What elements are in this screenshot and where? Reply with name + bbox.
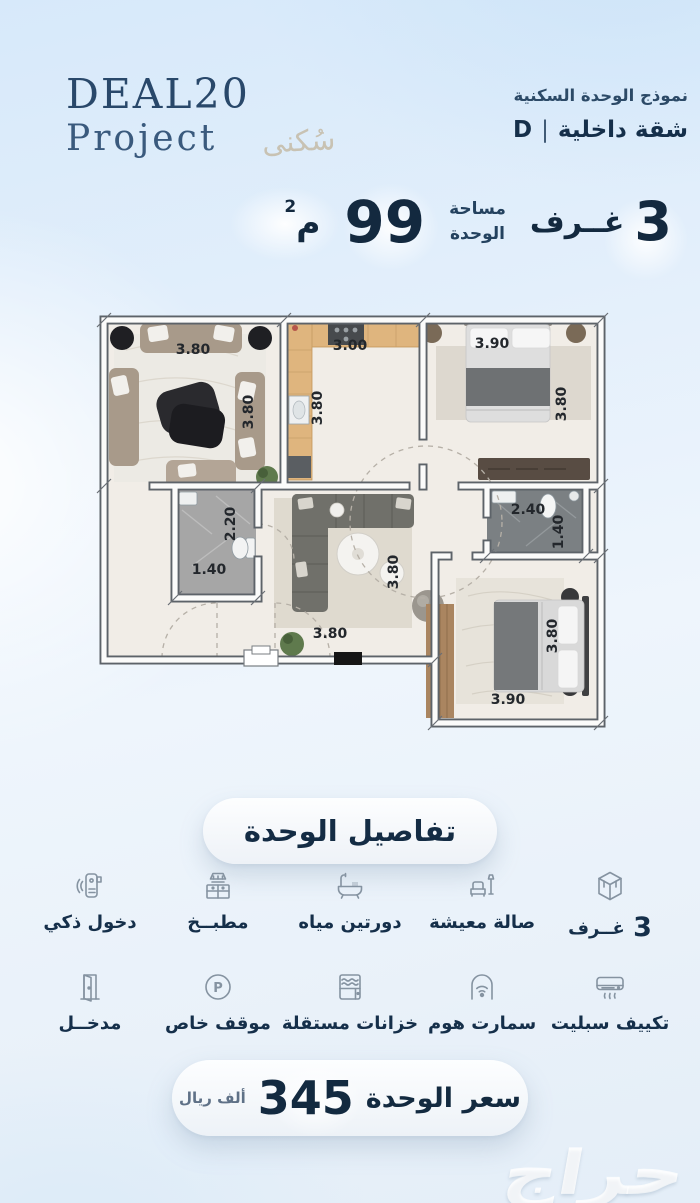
door-icon <box>72 969 108 1005</box>
area-label: مساحة الوحدة <box>449 197 506 248</box>
area-unit: م2 <box>284 203 320 242</box>
feature-kitchen: مطبــخ <box>154 868 282 943</box>
price-unit: ألف ريال <box>179 1089 246 1107</box>
header-unit-info: نموذج الوحدة السكنية شقة داخلية|D <box>513 86 688 143</box>
kitchen-icon <box>200 868 236 904</box>
feature-parking: P موقف خاص <box>154 969 282 1034</box>
brand-script-arabic: سُكنى <box>261 122 336 160</box>
price-pill: سعر الوحدة 345 ألف ريال <box>172 1060 528 1136</box>
svg-text:P: P <box>213 981 223 996</box>
floor-plan: 3.80 3.80 3.00 3.80 3.90 3.80 2.20 1.40 … <box>96 310 613 738</box>
dim-bedroom1-right: 3.80 <box>554 386 570 421</box>
unit-model-subtitle: نموذج الوحدة السكنية <box>513 86 688 105</box>
feature-tanks: خزانات مستقلة <box>282 969 418 1034</box>
price-value: 345 <box>258 1075 354 1121</box>
separator: | <box>541 117 549 143</box>
smart-home-icon <box>464 969 500 1005</box>
feature-smart-home: سمارت هوم <box>418 969 546 1034</box>
dim-bath1-height: 2.20 <box>223 506 239 541</box>
sofa-icon <box>464 868 500 904</box>
rooms-count: 3 <box>634 195 672 249</box>
unit-code: D <box>513 117 532 143</box>
feature-bathrooms: دورتين مياه <box>282 868 418 943</box>
bathtub-icon <box>332 868 368 904</box>
dim-bath1-width: 1.40 <box>192 562 227 578</box>
feature-ac: تكييف سبليت <box>546 969 674 1034</box>
parking-icon: P <box>200 969 236 1005</box>
dim-living-right: 3.80 <box>241 394 257 429</box>
rooms-cube-icon <box>592 868 628 904</box>
wall-marker <box>334 652 362 665</box>
brand-sub: Project <box>66 119 250 159</box>
dim-hall-height: 3.80 <box>386 554 402 589</box>
unit-type: شقة داخلية <box>558 117 688 143</box>
feature-smart-entry: دخول ذكي <box>26 868 154 943</box>
feature-living-room: صالة معيشة <box>418 868 546 943</box>
rooms-label: غــرف <box>530 205 625 240</box>
brand-name: DEAL20 <box>66 74 250 115</box>
ac-icon <box>592 969 628 1005</box>
dim-kitchen-top: 3.00 <box>333 338 368 354</box>
unit-type-line: شقة داخلية|D <box>513 117 688 143</box>
details-title-pill: تفاصيل الوحدة <box>203 798 497 864</box>
dim-living-top: 3.80 <box>176 342 211 358</box>
dim-bedroom2-width: 3.90 <box>491 692 526 708</box>
area-value: 99 <box>344 193 425 251</box>
details-title: تفاصيل الوحدة <box>244 814 456 848</box>
features-grid: 3 غــرف صالة معيشة دورتين مياه <box>26 868 674 1034</box>
dim-bath2-width: 2.40 <box>511 502 546 518</box>
brand-logo: DEAL20 Project سُكنى <box>66 74 250 159</box>
rooms-stat: 3 غــرف <box>530 195 672 249</box>
dim-bedroom2-height: 3.80 <box>545 618 561 653</box>
feature-entrance: مدخــل <box>26 969 154 1034</box>
entry-step <box>252 646 270 654</box>
dim-bedroom1-top: 3.90 <box>475 336 510 352</box>
dim-hall-width: 3.80 <box>313 626 348 642</box>
dim-kitchen-left: 3.80 <box>310 390 326 425</box>
poster: DEAL20 Project سُكنى نموذج الوحدة السكني… <box>0 0 700 1203</box>
haraj-watermark: حراج <box>498 1139 691 1203</box>
unit-stats-row: 3 غــرف مساحة الوحدة 99 م2 <box>252 176 672 268</box>
price-label: سعر الوحدة <box>366 1083 521 1114</box>
tanks-icon <box>332 969 368 1005</box>
smart-lock-icon <box>72 868 108 904</box>
feature-rooms: 3 غــرف <box>546 868 674 943</box>
dim-bath2-height: 1.40 <box>551 514 567 549</box>
